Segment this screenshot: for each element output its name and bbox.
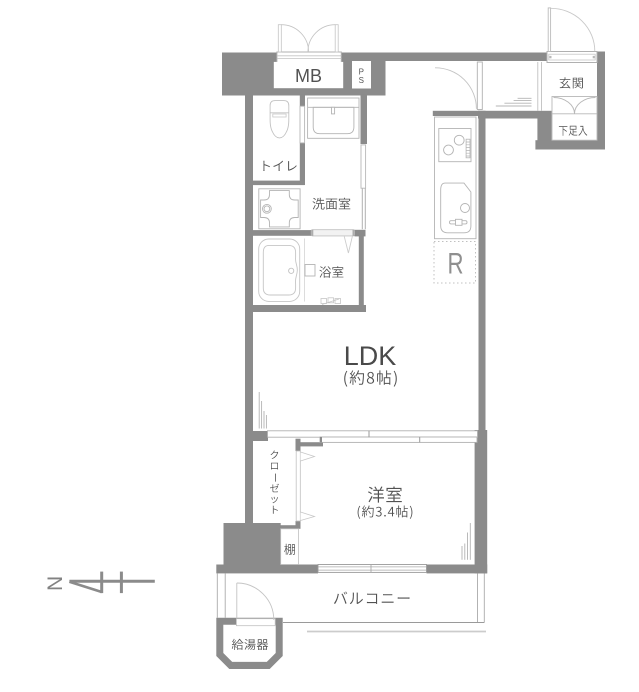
svg-text:MB: MB (295, 66, 322, 86)
svg-text:S: S (359, 76, 364, 85)
svg-text:N: N (44, 576, 67, 591)
svg-text:LDK: LDK (344, 341, 397, 371)
svg-text:R: R (448, 248, 464, 281)
